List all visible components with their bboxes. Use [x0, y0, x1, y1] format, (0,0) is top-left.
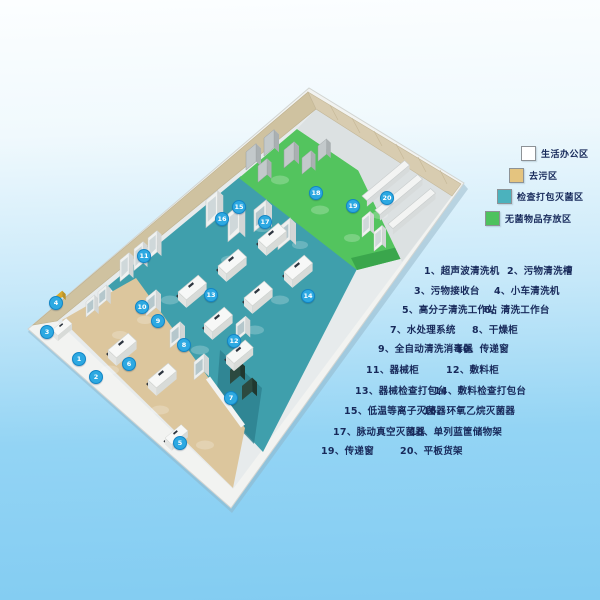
plan-marker-8: 8: [177, 338, 191, 352]
plan-marker-2: 2: [89, 370, 103, 384]
equipment-item-8: 8、干燥柜: [472, 322, 518, 336]
legend-swatch-inspection: [497, 189, 512, 204]
infographic-canvas: 1 2 3 4 5 6 7 8 9 10 11 12 13 14 15 16 1…: [0, 0, 600, 600]
plan-marker-19: 19: [346, 199, 360, 213]
equipment-item-20: 20、平板货架: [400, 443, 463, 457]
plan-marker-15: 15: [232, 200, 246, 214]
legend-row-sterile-storage: 无菌物品存放区: [485, 211, 572, 226]
equipment-item-4: 4、小车清洗机: [494, 283, 560, 297]
plan-marker-9: 9: [151, 314, 165, 328]
equipment-item-16: 16、环氧乙烷灭菌器: [423, 403, 515, 417]
plan-marker-20: 20: [380, 191, 394, 205]
plan-marker-18: 18: [309, 186, 323, 200]
equipment-item-6: 6、清洗工作台: [484, 302, 550, 316]
legend-swatch-decontamination: [509, 168, 524, 183]
plan-marker-5: 5: [173, 436, 187, 450]
equipment-item-7: 7、水处理系统: [390, 322, 456, 336]
legend-row-office: 生活办公区: [521, 146, 589, 161]
plan-marker-14: 14: [301, 289, 315, 303]
legend-swatch-sterile-storage: [485, 211, 500, 226]
equipment-item-14: 14、敷料检查打包台: [434, 383, 526, 397]
legend-row-decontamination: 去污区: [509, 168, 558, 183]
floor-plan: [0, 0, 600, 600]
equipment-item-18: 18、单列蓝筐储物架: [410, 424, 502, 438]
plan-marker-6: 6: [122, 357, 136, 371]
equipment-item-11: 11、器械柜: [366, 362, 419, 376]
plan-marker-7: 7: [224, 391, 238, 405]
equipment-item-1: 1、超声波清洗机: [424, 263, 500, 277]
equipment-item-3: 3、污物接收台: [414, 283, 480, 297]
equipment-item-5: 5、高分子清洗工作站: [402, 302, 497, 316]
legend-label-sterile-storage: 无菌物品存放区: [505, 212, 572, 225]
plan-marker-12: 12: [227, 334, 241, 348]
plan-marker-11: 11: [137, 249, 151, 263]
plan-marker-16: 16: [215, 212, 229, 226]
legend-row-inspection: 检查打包灭菌区: [497, 189, 584, 204]
legend-label-decontamination: 去污区: [529, 169, 558, 182]
plan-marker-4: 4: [49, 296, 63, 310]
plan-marker-3: 3: [40, 325, 54, 339]
plan-marker-17: 17: [258, 215, 272, 229]
legend-swatch-office: [521, 146, 536, 161]
legend-label-office: 生活办公区: [541, 147, 589, 160]
plan-marker-1: 1: [72, 352, 86, 366]
plan-marker-13: 13: [204, 288, 218, 302]
plan-marker-10: 10: [135, 300, 149, 314]
equipment-item-19: 19、传递窗: [321, 443, 374, 457]
equipment-item-12: 12、敷料柜: [446, 362, 499, 376]
equipment-item-2: 2、污物清洗槽: [507, 263, 573, 277]
legend-label-inspection: 检查打包灭菌区: [517, 190, 584, 203]
equipment-item-10: 10、传递窗: [456, 341, 509, 355]
